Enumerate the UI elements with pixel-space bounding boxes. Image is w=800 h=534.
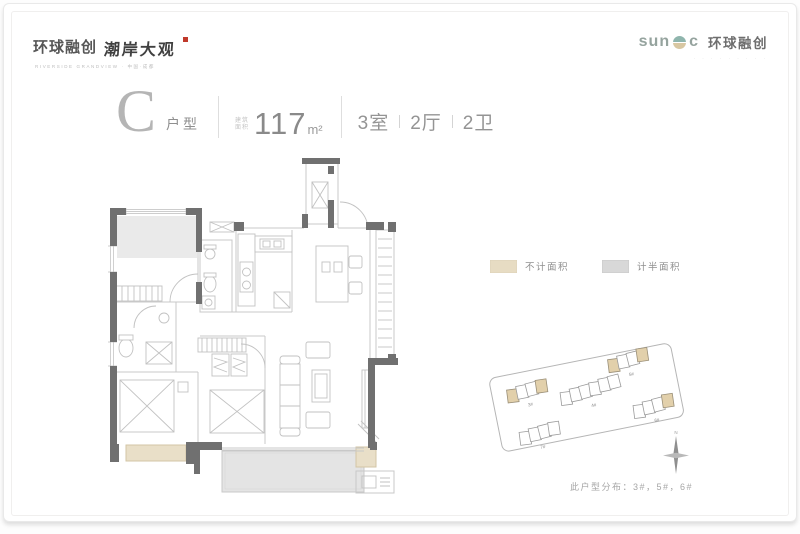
sunac-prefix: sun	[639, 33, 670, 51]
legend-swatch-half-counted	[602, 260, 629, 273]
globe-icon	[673, 36, 686, 49]
site-label-4: 4#	[591, 402, 597, 408]
floorplan-drawing	[100, 158, 410, 506]
sunac-tagline: · · · · · · · · ·	[639, 56, 768, 61]
brand-logo-left: 环球融创 潮岸大观 RIVERSIDE GRANDVIEW · 中国·成都	[33, 36, 188, 70]
spec-rooms: 3室	[358, 108, 390, 135]
spec-separator-2	[452, 115, 453, 128]
room-spec: 3室 2厅 2卫	[358, 108, 495, 135]
brand-caption: RIVERSIDE GRANDVIEW · 中国·成都	[33, 64, 188, 70]
site-label-7: 7#	[540, 444, 546, 450]
site-building-6: 6#	[631, 393, 677, 427]
spec-halls: 2厅	[410, 108, 442, 135]
title-divider	[218, 96, 219, 138]
unit-type-label: 户型	[166, 114, 200, 134]
site-building-4: 4#	[558, 374, 624, 414]
legend-label-half-counted: 计半面积	[637, 259, 681, 273]
area-caption: 建筑 面积	[235, 118, 249, 132]
site-plan: 3# 4# 5#	[480, 338, 700, 490]
spec-baths: 2卫	[463, 108, 495, 135]
site-building-7: 7#	[517, 421, 563, 454]
site-label-5: 5#	[628, 371, 634, 377]
area-value: 117	[254, 110, 306, 138]
legend-swatch-not-counted	[490, 260, 517, 273]
site-building-3: 3#	[505, 378, 551, 411]
spec-separator	[399, 115, 400, 128]
page: 环球融创 潮岸大观 RIVERSIDE GRANDVIEW · 中国·成都 su…	[0, 0, 800, 534]
title-divider-2	[341, 96, 342, 138]
sunac-brand-name: 环球融创	[708, 32, 768, 52]
compass-icon: N	[663, 430, 689, 474]
compass-north-label: N	[674, 430, 677, 435]
legend-label-not-counted: 不计面积	[525, 259, 569, 273]
legend-item-half-counted: 计半面积	[602, 259, 681, 273]
unit-title-block: C 户型 建筑 面积 117 m² 3室 2厅 2卫	[116, 84, 494, 138]
distribution-caption: 此户型分布：3#，5#，6#	[570, 480, 693, 493]
unit-letter: C	[116, 84, 156, 138]
project-name: 潮岸大观	[103, 36, 177, 60]
site-label-3: 3#	[527, 402, 533, 408]
sunac-suffix: c	[689, 33, 699, 51]
area-unit: m²	[307, 122, 322, 137]
brand-logo-right: sun c 环球融创 · · · · · · · · ·	[639, 32, 768, 61]
brand-name: 环球融创	[33, 36, 97, 57]
red-seal-icon	[183, 37, 188, 42]
site-label-6: 6#	[654, 417, 660, 423]
legend-item-not-counted: 不计面积	[490, 259, 569, 273]
site-boundary-group: 3# 4# 5#	[488, 342, 685, 457]
